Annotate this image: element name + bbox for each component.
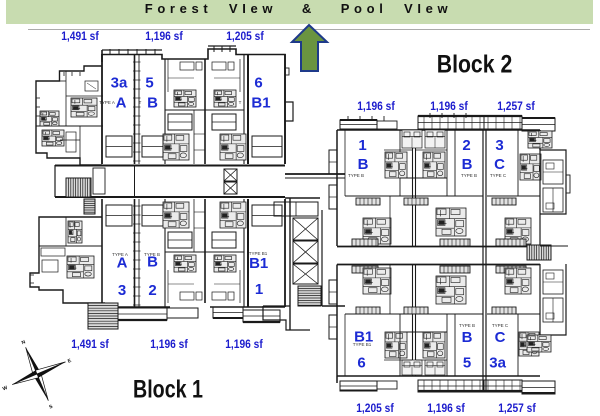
svg-text:3a: 3a [111,75,128,92]
svg-text:Block 2: Block 2 [437,51,513,79]
svg-text:T: T [239,100,242,105]
svg-text:C: C [495,329,506,346]
svg-text:B: B [462,329,473,346]
svg-text:TYPE B: TYPE B [461,173,477,178]
svg-text:1,196 sf: 1,196 sf [427,401,465,415]
svg-text:2: 2 [148,282,156,299]
svg-text:5: 5 [463,355,471,372]
svg-text:B: B [147,94,158,111]
svg-text:1,205 sf: 1,205 sf [356,401,394,415]
svg-text:1: 1 [358,137,366,154]
svg-text:TYPE B: TYPE B [144,252,160,257]
svg-text:B1: B1 [251,94,270,111]
svg-text:B: B [358,156,369,173]
svg-text:TYPE B: TYPE B [459,323,475,328]
svg-text:C: C [494,156,505,173]
svg-text:A: A [116,94,127,111]
svg-text:1,257 sf: 1,257 sf [497,99,535,113]
svg-text:1,257 sf: 1,257 sf [498,401,536,415]
svg-text:3a: 3a [489,355,506,372]
svg-text:B1: B1 [249,255,268,272]
svg-text:TYPE C: TYPE C [490,173,507,178]
svg-text:Forest VIew & Pool VIew: Forest VIew & Pool VIew [145,1,453,16]
svg-text:TYPE B1: TYPE B1 [353,342,372,347]
svg-text:TYPE C: TYPE C [492,323,509,328]
svg-text:6: 6 [254,75,262,92]
svg-text:3: 3 [118,282,126,299]
svg-text:TYPE B: TYPE B [348,173,364,178]
svg-text:1,196 sf: 1,196 sf [150,337,188,351]
svg-text:1,196 sf: 1,196 sf [225,337,263,351]
svg-text:1,196 sf: 1,196 sf [357,99,395,113]
svg-text:5: 5 [145,75,153,92]
svg-text:1,491 sf: 1,491 sf [61,29,99,43]
svg-text:TYPE A: TYPE A [112,252,128,257]
svg-text:1,196 sf: 1,196 sf [430,99,468,113]
svg-text:6: 6 [357,355,365,372]
svg-text:1: 1 [255,281,263,298]
svg-text:TYPE B1: TYPE B1 [249,251,268,256]
svg-text:3: 3 [495,137,503,154]
svg-text:1,205 sf: 1,205 sf [226,29,264,43]
svg-text:1,196 sf: 1,196 sf [145,29,183,43]
svg-text:2: 2 [462,137,470,154]
svg-text:B: B [462,156,473,173]
svg-text:1,491 sf: 1,491 sf [71,337,109,351]
svg-text:Block 1: Block 1 [133,376,203,404]
